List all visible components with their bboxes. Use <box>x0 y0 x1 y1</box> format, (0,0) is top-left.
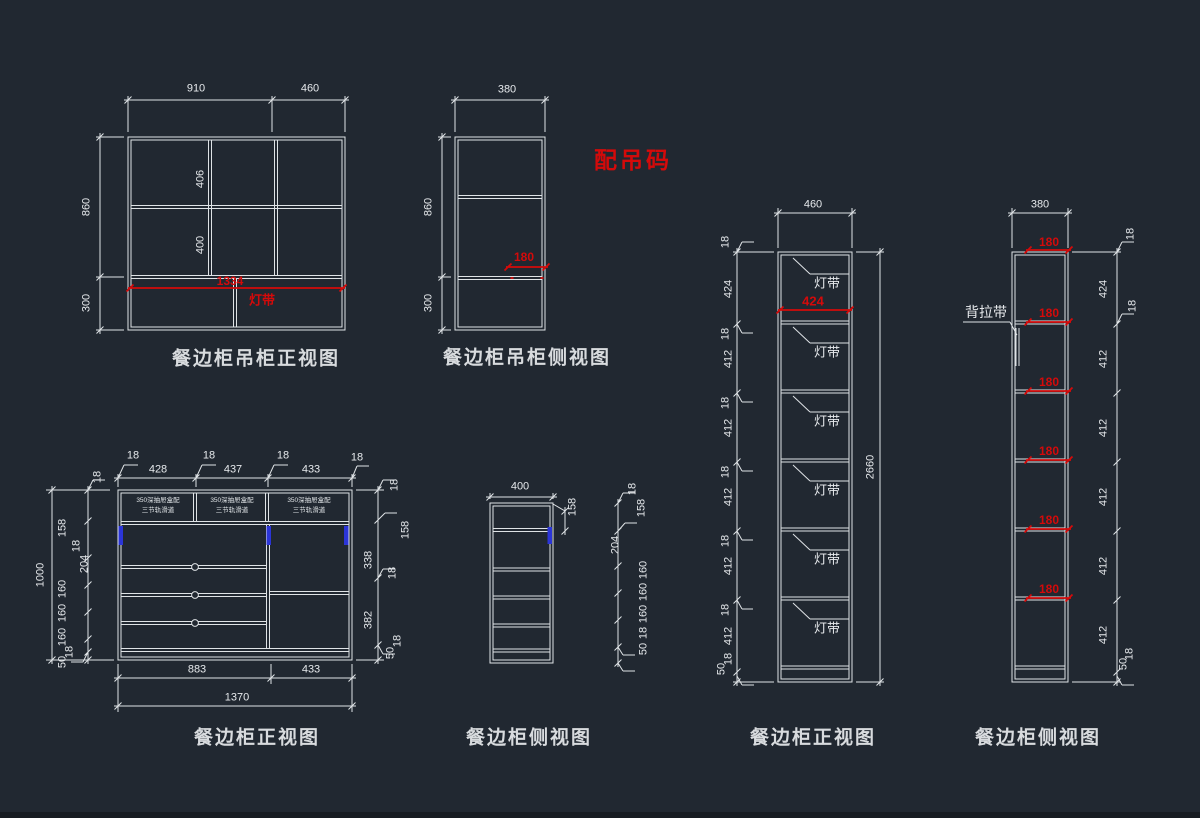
light-strip-label: 灯带 <box>814 346 840 359</box>
view-title-cabinet-front: 餐边柜正视图 <box>194 723 320 750</box>
dim-label: 18 <box>628 483 639 495</box>
view-title-tall-cabinet-front: 餐边柜正视图 <box>750 723 876 750</box>
dim-label: 18 <box>388 567 399 579</box>
dim-label: 180 <box>1039 236 1059 248</box>
dim-label: 18 <box>721 466 732 478</box>
back-strap-label: 背拉带 <box>965 302 1007 322</box>
dim-label: 204 <box>611 536 622 554</box>
dim-label: 300 <box>82 294 93 312</box>
dim-label: 433 <box>302 665 320 676</box>
dim-label: 180 <box>1039 583 1059 595</box>
dim-label: 18 <box>351 453 363 464</box>
dim-label: 18 <box>277 451 289 462</box>
dim-label: 18 <box>390 479 401 491</box>
dim-label: 350深抽屉盒配 <box>210 498 253 505</box>
labels-layer: 9104608603004064001334灯带3808603001801842… <box>0 0 1200 818</box>
dim-label: 1000 <box>36 563 47 587</box>
dim-label: 18 <box>721 328 732 340</box>
dim-label: 160 <box>58 628 69 646</box>
dim-label: 160 <box>58 580 69 598</box>
dim-label: 180 <box>1039 514 1059 526</box>
dim-label: 380 <box>498 85 516 96</box>
dim-label: 424 <box>1099 280 1110 298</box>
dim-label: 883 <box>188 665 206 676</box>
dim-label: 三节轨滑道 <box>216 508 249 515</box>
view-title-tall-cabinet-side: 餐边柜侧视图 <box>975 723 1101 750</box>
dim-label: 860 <box>424 198 435 216</box>
dim-label: 412 <box>1099 626 1110 644</box>
dim-label: 412 <box>724 419 735 437</box>
dim-label: 412 <box>1099 350 1110 368</box>
dim-label: 18 <box>721 604 732 616</box>
dim-label: 412 <box>724 627 735 645</box>
bottom-edge-strip <box>0 812 1200 818</box>
dim-label: 424 <box>724 280 735 298</box>
view-title-hanging-cabinet-side: 餐边柜吊柜侧视图 <box>443 343 611 370</box>
dim-label: 412 <box>1099 557 1110 575</box>
dim-label: 158 <box>568 498 579 516</box>
dim-label: 180 <box>514 251 534 263</box>
dim-label: 18 <box>393 635 404 647</box>
dim-label: 50 <box>386 647 397 659</box>
dim-label: 158 <box>637 499 648 517</box>
dim-label: 180 <box>1039 376 1059 388</box>
dim-label: 910 <box>187 84 205 95</box>
cad-canvas: 9104608603004064001334灯带3808603001801842… <box>0 0 1200 818</box>
dim-label: 三节轨滑道 <box>142 508 175 515</box>
dim-label: 406 <box>196 170 207 188</box>
light-strip-label: 灯带 <box>814 622 840 635</box>
dim-label: 18 <box>721 397 732 409</box>
dim-label: 18 <box>1128 300 1139 312</box>
dim-label: 50 <box>58 656 69 668</box>
dim-label: 18 <box>93 471 104 483</box>
dim-label: 18 <box>639 627 650 639</box>
dim-label: 50 <box>1119 658 1130 670</box>
dim-label: 412 <box>1099 488 1110 506</box>
dim-label: 350深抽屉盒配 <box>136 498 179 505</box>
dim-label: 428 <box>149 465 167 476</box>
dim-label: 460 <box>804 200 822 211</box>
light-strip-label: 灯带 <box>814 484 840 497</box>
dim-label: 412 <box>724 350 735 368</box>
dim-label: 160 <box>639 583 650 601</box>
dim-label: 三节轨滑道 <box>293 508 326 515</box>
light-strip-label: 灯带 <box>249 294 275 307</box>
dim-label: 412 <box>724 557 735 575</box>
dim-label: 180 <box>1039 307 1059 319</box>
dim-label: 437 <box>224 465 242 476</box>
dim-label: 424 <box>802 295 824 308</box>
light-strip-label: 灯带 <box>814 415 840 428</box>
dim-label: 1370 <box>225 693 249 704</box>
dim-label: 433 <box>302 465 320 476</box>
dim-label: 412 <box>1099 419 1110 437</box>
dim-label: 18 <box>72 540 83 552</box>
dim-label: 460 <box>301 84 319 95</box>
dim-label: 400 <box>196 236 207 254</box>
light-strip-label: 灯带 <box>814 553 840 566</box>
hanging-hardware-note: 配吊码 <box>594 141 672 175</box>
dim-label: 412 <box>724 488 735 506</box>
dim-label: 50 <box>717 663 728 675</box>
dim-label: 158 <box>401 521 412 539</box>
dim-label: 380 <box>1031 200 1049 211</box>
dim-label: 50 <box>639 643 650 655</box>
dim-label: 18 <box>203 451 215 462</box>
dim-label: 160 <box>58 604 69 622</box>
dim-label: 204 <box>80 555 91 573</box>
dim-label: 860 <box>82 198 93 216</box>
dim-label: 18 <box>721 236 732 248</box>
dim-label: 300 <box>424 294 435 312</box>
dim-label: 18 <box>1126 228 1137 240</box>
dim-label: 382 <box>364 611 375 629</box>
dim-label: 1334 <box>217 275 244 287</box>
dim-label: 2660 <box>866 455 877 479</box>
dim-label: 400 <box>511 482 529 493</box>
dim-label: 18 <box>127 451 139 462</box>
dim-label: 160 <box>639 605 650 623</box>
dim-label: 18 <box>721 535 732 547</box>
view-title-hanging-cabinet-front: 餐边柜吊柜正视图 <box>172 344 340 371</box>
view-title-cabinet-side: 餐边柜侧视图 <box>466 723 592 750</box>
light-strip-label: 灯带 <box>814 277 840 290</box>
dim-label: 338 <box>364 551 375 569</box>
dim-label: 350深抽屉盒配 <box>287 498 330 505</box>
dim-label: 180 <box>1039 445 1059 457</box>
dim-label: 160 <box>639 561 650 579</box>
dim-label: 158 <box>58 519 69 537</box>
